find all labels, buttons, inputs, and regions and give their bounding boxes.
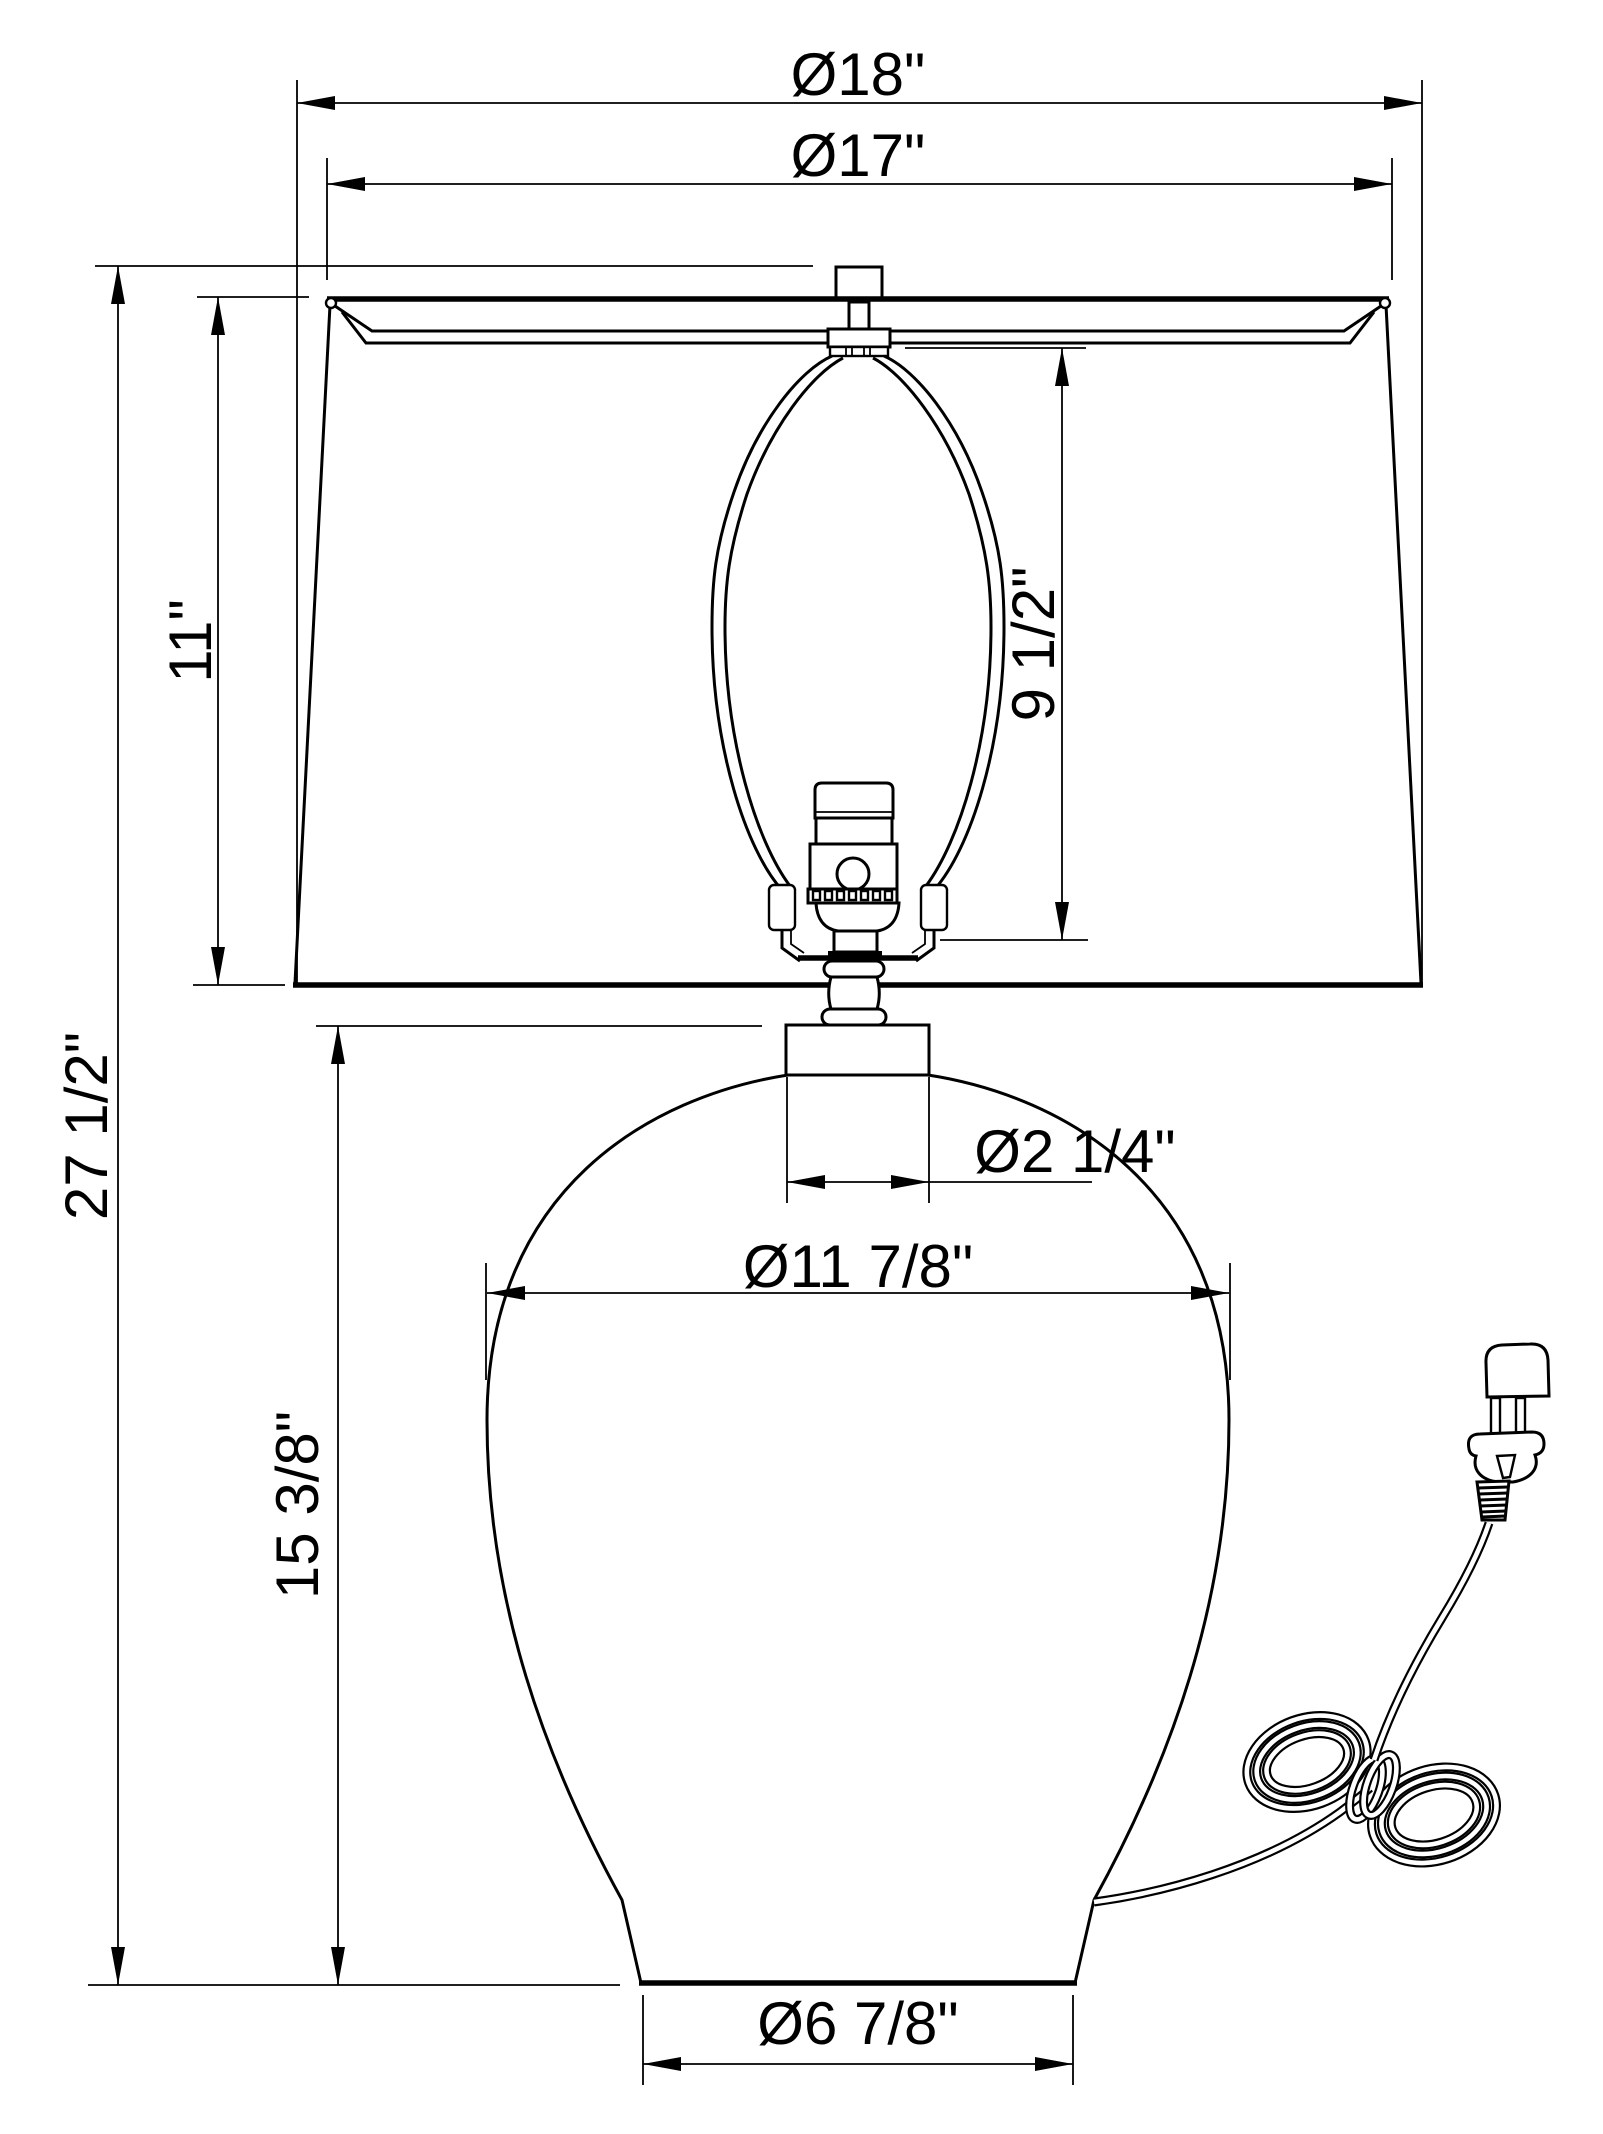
neck-collar-lower (822, 1009, 886, 1025)
dim-label-body-max-diameter: Ø11 7/8" (743, 1233, 973, 1300)
dimension-shade-top-diameter: Ø17" (327, 122, 1392, 280)
light-socket (808, 783, 899, 952)
arrowhead-down-icon (211, 947, 225, 985)
socket-switch-knob (837, 858, 869, 890)
dimension-overall-height: 27 1/2" (53, 266, 813, 1985)
neck-cylinder (829, 977, 880, 1009)
arrowhead-left-icon (787, 1175, 825, 1189)
arrowhead-left-icon (327, 177, 365, 191)
dim-label-shade-top-diameter: Ø17" (791, 122, 926, 189)
finial (836, 267, 882, 300)
shade-right-edge (1386, 305, 1421, 983)
dim-label-base-diameter: Ø6 7/8" (757, 1990, 958, 2057)
harp-top-bracket (828, 329, 890, 347)
socket-cup (816, 903, 899, 931)
harp-sleeve-left (769, 885, 795, 930)
power-plug (1468, 1344, 1549, 1520)
dim-label-body-height: 15 3/8" (264, 1411, 331, 1599)
arrowhead-down-icon (1055, 902, 1069, 940)
body-left-outline (487, 1075, 788, 1983)
lamp-neck (786, 961, 929, 1075)
finial-stem (849, 302, 869, 330)
dimension-shade-height: 11" (157, 297, 309, 985)
lamp-dimension-diagram: Ø18" Ø17" 27 1/2" 11" 9 1/2" (0, 0, 1603, 2134)
arrowhead-up-icon (331, 1026, 345, 1064)
dim-label-harp-height: 9 1/2" (1000, 567, 1067, 722)
lamp-body (487, 1075, 1229, 1983)
arrowhead-up-icon (211, 297, 225, 335)
diagram-canvas: Ø18" Ø17" 27 1/2" 11" 9 1/2" (0, 0, 1603, 2134)
neck-collar-upper (824, 961, 884, 977)
dimension-harp-height: 9 1/2" (905, 348, 1088, 940)
shade-rim-wire-end (1380, 298, 1390, 308)
dimension-neck-diameter: Ø2 1/4" (787, 1077, 1176, 1203)
dim-label-shade-height: 11" (157, 599, 224, 683)
arrowhead-down-icon (111, 1947, 125, 1985)
dimension-base-diameter: Ø6 7/8" (643, 1990, 1073, 2085)
body-right-outline (928, 1075, 1229, 1983)
dim-label-overall-height: 27 1/2" (53, 1032, 120, 1220)
power-cord (1094, 1523, 1509, 1902)
arrowhead-right-icon (1384, 96, 1422, 110)
shade-rim-wire-end (326, 298, 336, 308)
dimension-body-max-diameter: Ø11 7/8" (486, 1233, 1230, 1380)
body-cap (786, 1025, 929, 1075)
arrowhead-right-icon (1354, 177, 1392, 191)
dim-label-shade-bottom-diameter: Ø18" (791, 41, 926, 108)
shade-left-edge (295, 305, 330, 983)
harp-saddle-plate (830, 347, 888, 356)
arrowhead-left-icon (643, 2057, 681, 2071)
plug-cover-cap (1486, 1344, 1549, 1397)
arrowhead-right-icon (1035, 2057, 1073, 2071)
harp-sleeve-right (921, 885, 947, 930)
arrowhead-up-icon (1055, 348, 1069, 386)
socket-pipe (834, 931, 877, 952)
arrowhead-down-icon (331, 1947, 345, 1985)
socket-upper (816, 818, 892, 844)
arrowhead-left-icon (297, 96, 335, 110)
arrowhead-right-icon (891, 1175, 929, 1189)
socket-shell-notches (813, 891, 892, 900)
arrowhead-up-icon (111, 266, 125, 304)
dimension-body-height: 15 3/8" (264, 1026, 762, 1985)
